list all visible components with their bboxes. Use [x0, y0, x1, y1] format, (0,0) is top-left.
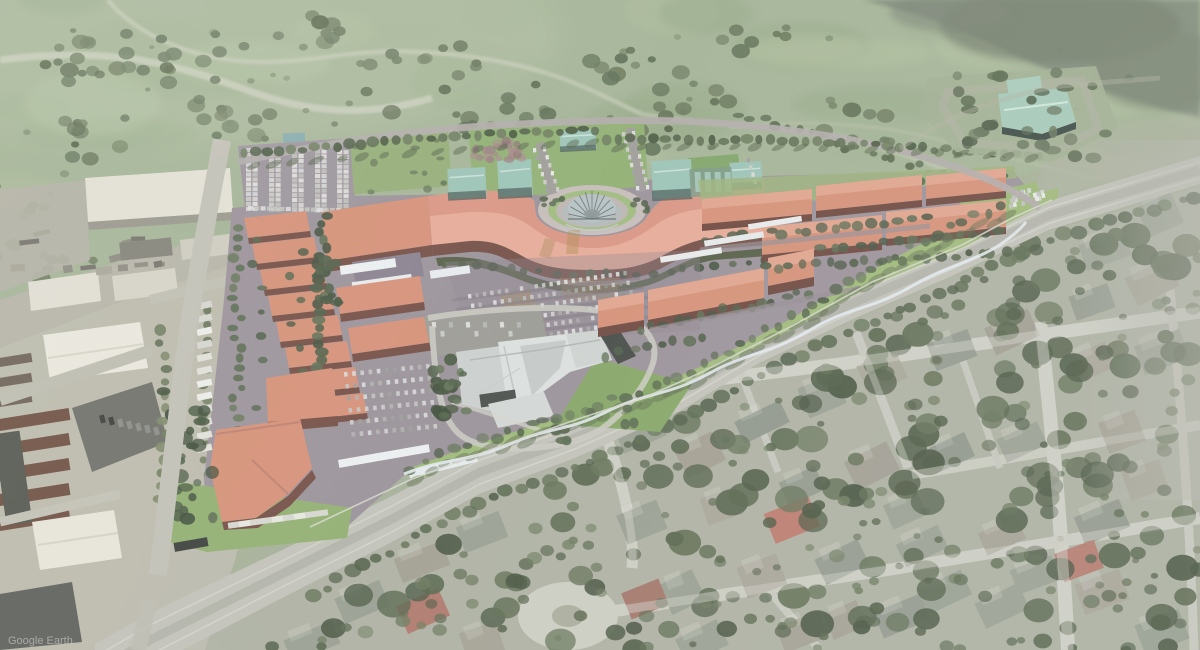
svg-text:Google Earth: Google Earth — [8, 635, 73, 647]
